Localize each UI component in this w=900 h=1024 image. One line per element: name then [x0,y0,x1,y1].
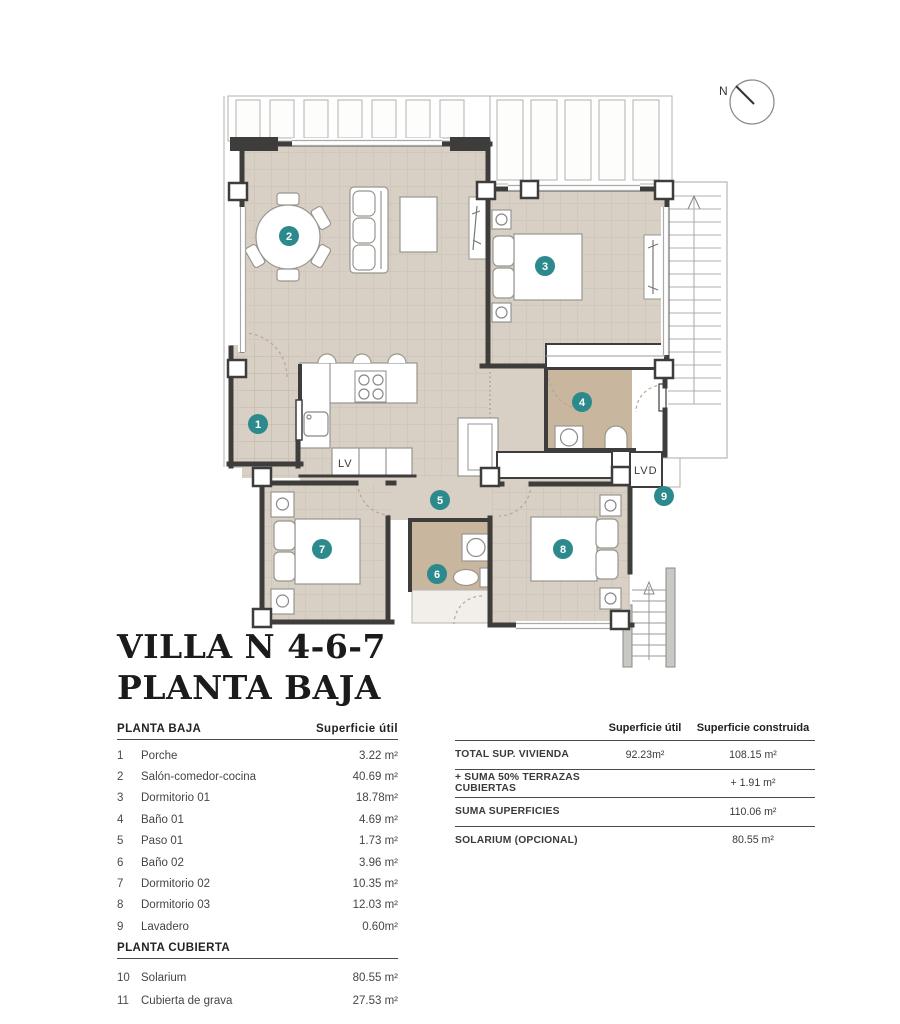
svg-text:1: 1 [255,419,261,431]
lower-stairs [623,568,675,667]
table-row: TOTAL SUP. VIVIENDA92.23m²108.15 m² [455,740,815,769]
table-row: SOLARIUM (OPCIONAL)80.55 m² [455,826,815,855]
room-marker-1: 1 [248,414,268,434]
room-marker-4: 4 [572,392,592,412]
table-row: 9Lavadero0.60m² [117,916,398,937]
svg-text:9: 9 [661,491,667,503]
column-header-built: Superficie construida [691,722,815,734]
section-header: PLANTA BAJA [117,723,201,735]
coffee-table [400,197,437,252]
section-header: PLANTA CUBIERTA [117,942,230,954]
table-row: 1Porche3.22 m² [117,745,398,766]
table-row: SUMA SUPERFICIES110.06 m² [455,797,815,826]
floorplan-page: LVD LV 1 2 3 4 5 6 7 8 9 N VILLA N 4-6-7… [0,0,900,1024]
room-marker-7: 7 [312,539,332,559]
svg-text:3: 3 [542,261,548,273]
table-row: 3Dormitorio 0118.78m² [117,788,398,809]
lv-label: LV [338,458,353,470]
room-marker-8: 8 [553,539,573,559]
svg-text:6: 6 [434,569,440,581]
svg-text:2: 2 [286,231,292,243]
areas-table-header: PLANTA BAJA Superficie útil [117,723,398,740]
sofa [350,187,388,273]
room-marker-3: 3 [535,256,555,276]
tv-unit [469,197,486,259]
table-row: 2Salón-comedor-cocina40.69 m² [117,766,398,787]
exterior-stairs [665,182,727,458]
areas-table: PLANTA BAJA Superficie útil 1Porche3.22 … [117,723,398,1012]
svg-text:4: 4 [579,397,586,409]
lvd-label: LVD [634,465,658,477]
table-row: 6Baño 023.96 m² [117,852,398,873]
table-row: + SUMA 50% TERRAZAS CUBIERTAS+ 1.91 m² [455,769,815,798]
table-row: 5Paso 011.73 m² [117,831,398,852]
column-header: Superficie útil [316,723,398,735]
title-line-2: PLANTA BAJA [117,667,386,708]
north-label: N [719,84,728,98]
table-row: 8Dormitorio 0312.03 m² [117,895,398,916]
title-line-1: VILLA N 4-6-7 [117,626,386,667]
room-marker-6: 6 [427,564,447,584]
page-title: VILLA N 4-6-7 PLANTA BAJA [117,626,386,708]
svg-text:5: 5 [437,495,443,507]
table-row: 11Cubierta de grava27.53 m² [117,989,398,1012]
room-marker-5: 5 [430,490,450,510]
column-header-util: Superficie útil [599,722,691,734]
room-marker-9: 9 [654,486,674,506]
areas-table-header-2: PLANTA CUBIERTA [117,942,398,959]
north-compass: N [719,80,774,124]
table-row: 10Solarium80.55 m² [117,967,398,990]
table-row: 4Baño 014.69 m² [117,809,398,830]
room-marker-2: 2 [279,226,299,246]
summary-table: Superficie útil Superficie construida TO… [455,722,815,854]
summary-table-header: Superficie útil Superficie construida [455,722,815,740]
table-row: 7Dormitorio 0210.35 m² [117,873,398,894]
svg-text:7: 7 [319,544,325,556]
floor-plan: LVD LV 1 2 3 4 5 6 7 8 9 N [0,0,900,720]
svg-text:8: 8 [560,544,566,556]
